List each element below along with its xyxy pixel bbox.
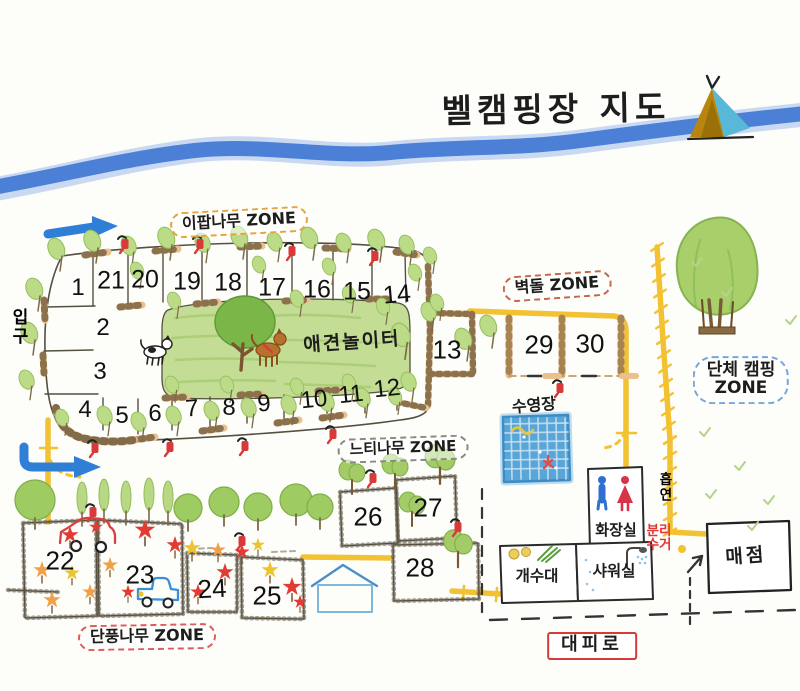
tent-icon — [688, 76, 753, 139]
tree-icon — [399, 492, 425, 526]
tree-icon — [94, 404, 115, 436]
maple-leaf-icon — [261, 561, 278, 583]
tree-icon — [209, 487, 239, 526]
maple-leaf-icon — [190, 584, 205, 604]
water-tap-icon — [238, 438, 249, 455]
direction-arrow-icon — [24, 447, 101, 478]
facility-buildings — [500, 467, 791, 603]
tree-icon — [320, 256, 338, 284]
poplar-tree-icon — [144, 478, 154, 522]
tree-icon — [477, 313, 500, 348]
tree-icon — [238, 396, 259, 428]
campground-map: 벨캠핑장 지도 이팝나무 ZONE 벽돌 ZONE 단체 캠핑 ZONE 느티나… — [0, 0, 800, 691]
swimming-pool — [503, 415, 570, 482]
river — [0, 113, 800, 190]
tree-icon — [382, 454, 408, 488]
poplar-tree-icon — [99, 479, 109, 523]
maple-leaf-icon — [251, 538, 265, 556]
maple-leaf-icon — [33, 561, 50, 583]
tree-icon — [250, 254, 268, 282]
water-tap-icon — [235, 533, 246, 550]
direction-arrow-icon — [48, 216, 118, 238]
tree-icon — [155, 225, 178, 260]
trees — [15, 217, 758, 567]
tree-icon — [45, 236, 68, 271]
tree-icon — [264, 230, 285, 262]
water-tap-icon — [163, 439, 174, 456]
tree-icon — [16, 368, 37, 400]
tree-icon — [444, 530, 473, 567]
maple-leaf-icon — [216, 563, 233, 585]
maple-leaf-icon — [89, 520, 103, 538]
tree-icon — [244, 493, 272, 530]
maple-leaf-icon — [210, 542, 225, 562]
poplar-tree-icon — [121, 481, 131, 525]
swing-tree-icon — [677, 217, 758, 334]
tree-icon — [406, 262, 424, 290]
maple-leaf-icon — [64, 565, 79, 585]
tree-icon — [307, 494, 333, 529]
tree-icon — [163, 404, 184, 436]
poplar-tree-icon — [163, 481, 173, 525]
shelter-icon — [312, 565, 377, 612]
brick-zone-cells — [509, 318, 636, 376]
water-tap-icon — [553, 380, 564, 397]
map-drawing — [0, 0, 800, 691]
maple-leaf-icon — [102, 557, 117, 577]
maple-leaf-icon — [283, 577, 302, 601]
maple-leaf-icon — [43, 591, 60, 613]
tree-icon — [128, 260, 146, 288]
dog-park — [162, 299, 410, 399]
maple-leaf-icon — [121, 585, 135, 603]
water-tap-icon — [366, 470, 377, 487]
tree-icon — [18, 320, 41, 355]
truck-icon — [138, 578, 178, 608]
water-tap-icon — [285, 243, 296, 260]
